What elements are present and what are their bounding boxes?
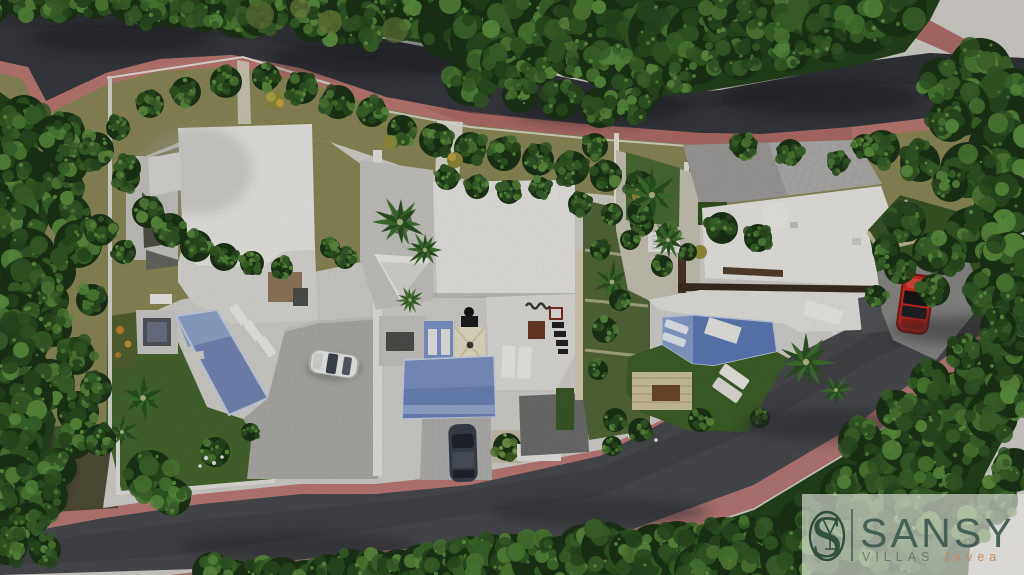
svg-text:VILLAS Javea: VILLAS Javea [862,550,1001,564]
svg-text:S: S [810,504,843,570]
